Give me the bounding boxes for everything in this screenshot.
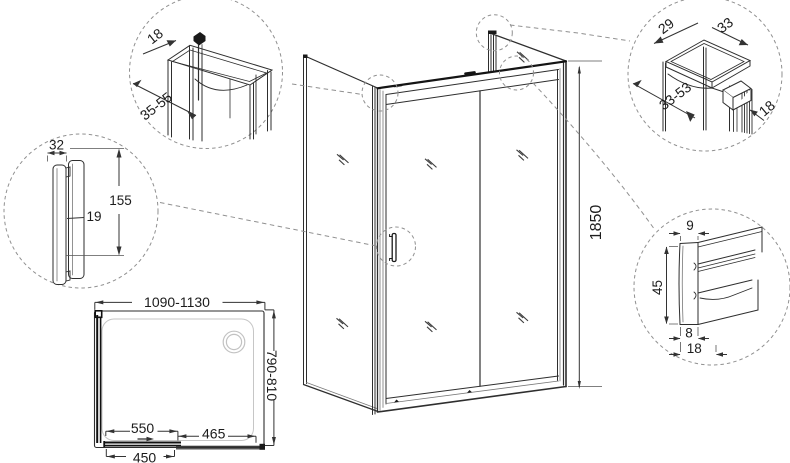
svg-text:35-55: 35-55 bbox=[137, 89, 175, 124]
svg-text:155: 155 bbox=[109, 193, 132, 208]
svg-text:18: 18 bbox=[756, 97, 778, 119]
svg-text:33: 33 bbox=[714, 14, 736, 36]
svg-text:18: 18 bbox=[144, 25, 166, 47]
svg-text:465: 465 bbox=[202, 425, 226, 441]
svg-text:1090-1130: 1090-1130 bbox=[144, 294, 210, 310]
svg-text:19: 19 bbox=[86, 209, 101, 224]
svg-text:33-53: 33-53 bbox=[656, 79, 694, 113]
svg-text:1850: 1850 bbox=[588, 205, 605, 241]
svg-text:9: 9 bbox=[686, 218, 694, 233]
svg-text:45: 45 bbox=[650, 280, 665, 295]
svg-text:8: 8 bbox=[685, 325, 693, 340]
svg-text:450: 450 bbox=[133, 449, 157, 463]
svg-text:790-810: 790-810 bbox=[264, 350, 280, 402]
svg-text:550: 550 bbox=[131, 420, 155, 436]
svg-text:18: 18 bbox=[687, 341, 702, 356]
svg-text:32: 32 bbox=[49, 138, 64, 153]
